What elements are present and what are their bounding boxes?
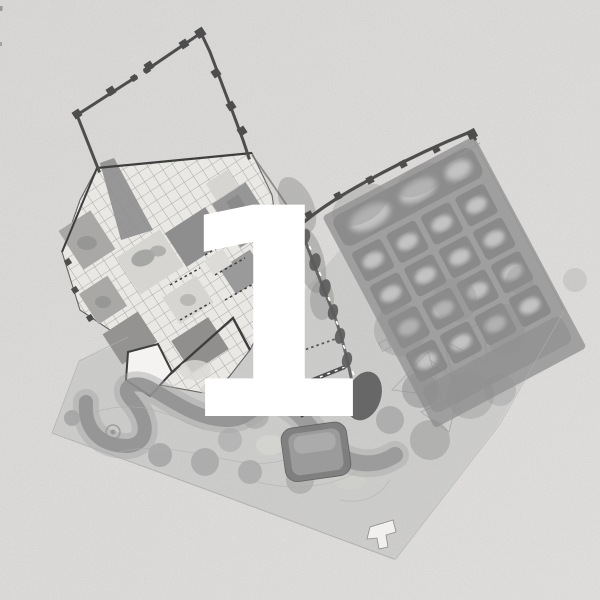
site-plan-figure: 1 <box>0 0 600 600</box>
pond <box>95 296 111 308</box>
site-plan-canvas: 1 <box>0 0 600 600</box>
sheet-number: 1 <box>171 148 373 485</box>
pond <box>150 246 166 257</box>
paper-speck <box>0 42 2 46</box>
pond <box>77 236 97 250</box>
fountain-ring <box>111 430 116 435</box>
paper-speck <box>0 6 3 11</box>
